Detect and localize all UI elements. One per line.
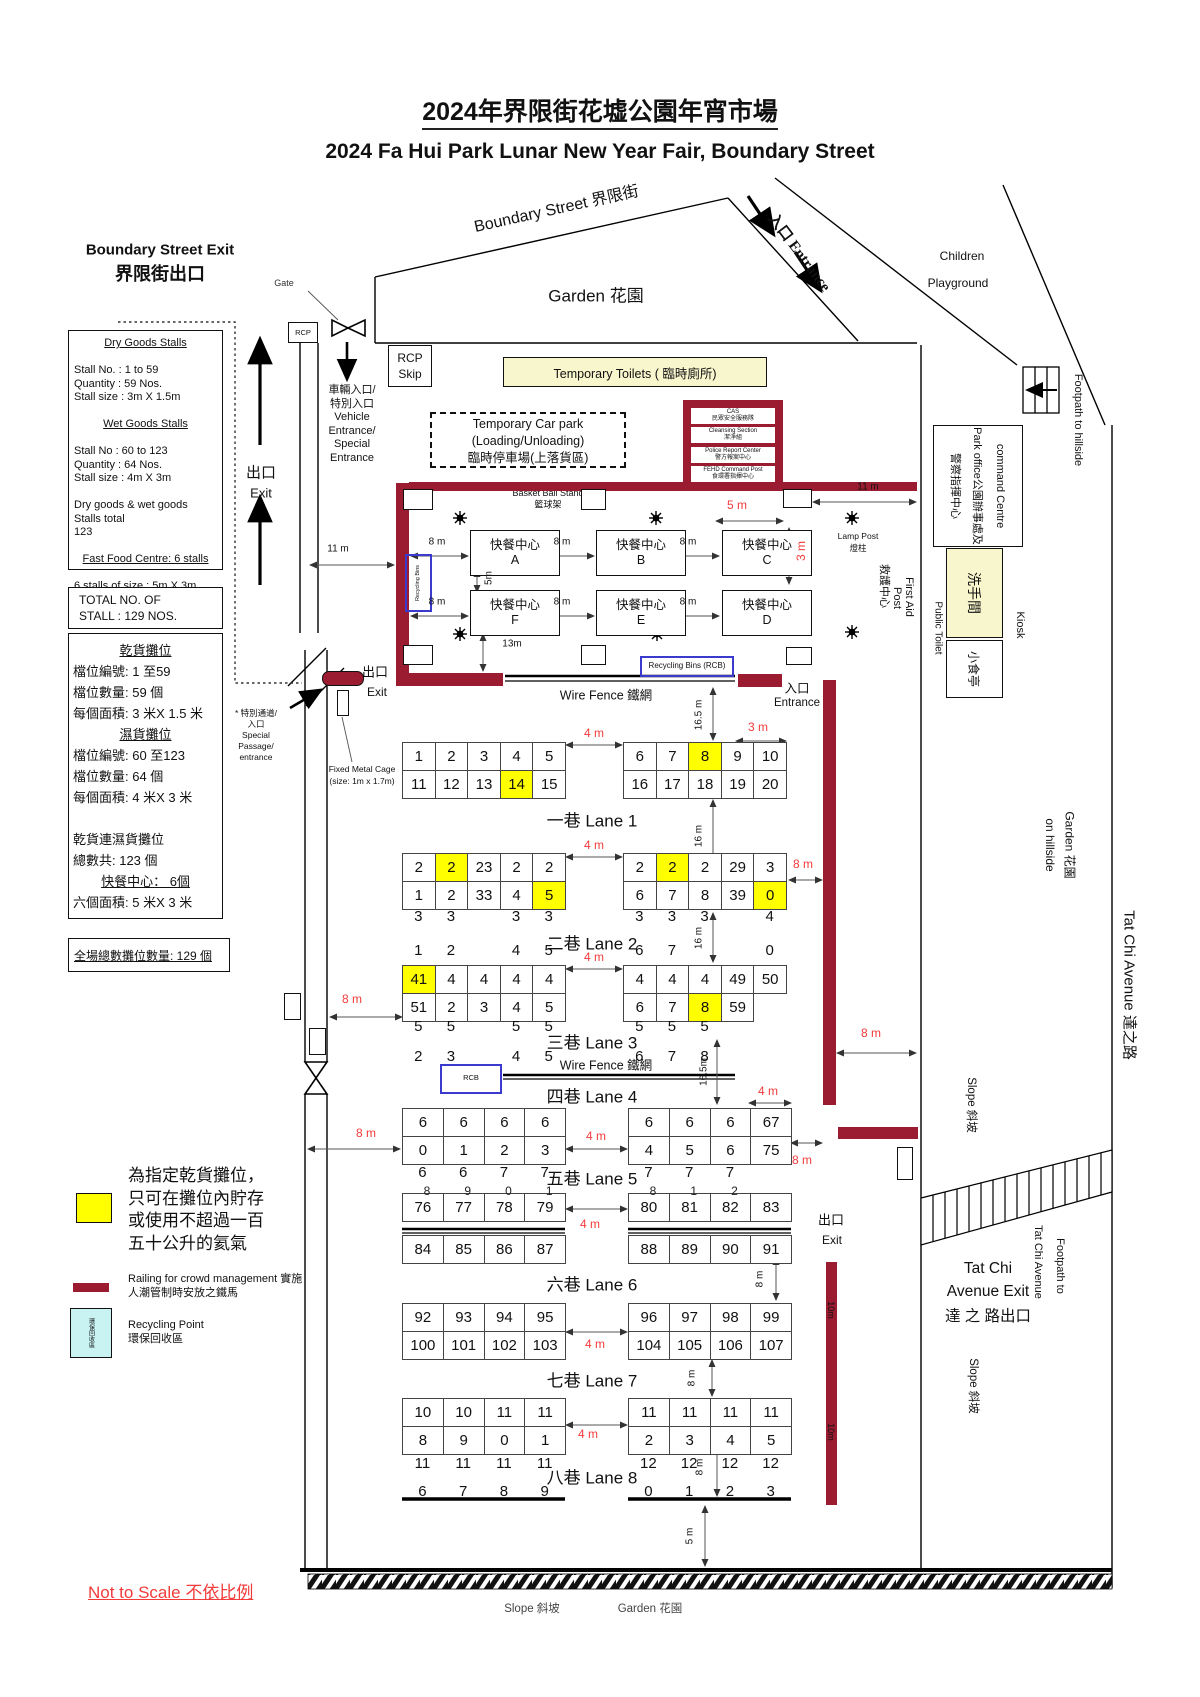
stall-number: 1	[459, 1142, 467, 1159]
stall-number: 105	[677, 1337, 702, 1354]
lane-label-8: 八巷 Lane 8	[547, 1464, 638, 1489]
stall-number: 2	[545, 859, 553, 876]
garden-hillside-2: on hillside	[1043, 818, 1057, 871]
special-passage-line: 入口	[226, 719, 286, 730]
stall-number: 0	[766, 887, 774, 904]
stall-number: 7	[668, 999, 676, 1016]
stall-number: 7	[668, 748, 676, 765]
children-playground-1: Children	[940, 249, 985, 263]
gate-post	[403, 489, 433, 510]
gate-post	[786, 647, 812, 665]
grand-total-text: 全場總數攤位數量: 129 個	[74, 947, 212, 964]
stall-number: 10	[455, 1404, 472, 1421]
info-line-zh	[73, 808, 218, 829]
command-post-row: Police Report Center警方報案中心	[691, 447, 775, 463]
railing-pill	[322, 671, 364, 686]
fair-map: 2024年界限街花墟公園年宵市場 2024 Fa Hui Park Lunar …	[0, 0, 1200, 1697]
stray-digit: 5	[668, 1018, 676, 1035]
stall-number: 6	[419, 1114, 427, 1131]
stall-cell: 2	[532, 853, 566, 882]
command-centre-line-1: command Centre	[994, 444, 1006, 528]
stall-cell: 107	[750, 1331, 792, 1360]
tat-chi-exit-2: Avenue Exit	[947, 1283, 1029, 1301]
stall-cell: 88	[628, 1235, 670, 1264]
stall-number: 11	[723, 1404, 739, 1421]
measure-label: 8 m	[356, 1126, 376, 1140]
legend-recycling-text: Recycling Point環保回收區	[128, 1318, 204, 1346]
stall-cell: 11	[484, 1398, 526, 1427]
stall-cell: 4	[467, 965, 501, 994]
stall-number: 9	[459, 1432, 467, 1449]
stall-number: 5	[545, 999, 553, 1016]
stall-number: 84	[415, 1241, 432, 1258]
info-line	[74, 351, 217, 365]
legend-gas-line: 或使用不超過一百	[128, 1210, 264, 1233]
measure-label: 4 m	[584, 726, 604, 740]
stall-cell: 2	[435, 881, 469, 910]
footpath-hillside-label: Footpath to hillside	[1072, 374, 1084, 466]
stall-number: 103	[533, 1337, 558, 1354]
command-centre-line-3: 警察指揮中心	[948, 453, 964, 519]
food-court-name: 快餐中心	[742, 598, 792, 613]
info-line: Quantity : 64 Nos.	[74, 459, 217, 473]
stall-number: 81	[681, 1199, 698, 1216]
stall-number: 3	[541, 1142, 549, 1159]
vehicle-entrance-line: 車輛入口/	[312, 384, 392, 398]
stall-number: 4	[701, 971, 709, 988]
measure-label: 8 m	[554, 537, 571, 548]
stall-number: 77	[455, 1199, 472, 1216]
stall-cell: 59	[721, 993, 755, 1022]
stall-number: 101	[451, 1337, 476, 1354]
info-line-zh: 檔位數量: 59 個	[73, 682, 218, 703]
stall-cell: 23	[467, 853, 501, 882]
stall-cell: 1	[402, 742, 436, 771]
stall-cell: 0	[484, 1426, 526, 1455]
stall-number: 4	[512, 748, 520, 765]
stall-cell: 11	[628, 1398, 670, 1427]
stall-number: 10	[415, 1404, 432, 1421]
stall-number: 2	[500, 1142, 508, 1159]
stall-cell: 12	[435, 770, 469, 799]
stray-digit: 7	[500, 1164, 508, 1181]
exit-corridor-zh: 出口	[246, 462, 276, 483]
stall-number-overlay: 8	[650, 1184, 657, 1198]
stall-number: 2	[447, 748, 455, 765]
stall-cell: 6	[710, 1108, 752, 1137]
stall-number: 82	[722, 1199, 739, 1216]
stall-cell: 67	[750, 1108, 792, 1137]
stall-number: 4	[636, 971, 644, 988]
stall-cell: 90	[710, 1235, 752, 1264]
lamp-post-label-zh: 燈柱	[849, 542, 866, 554]
kiosk-box-text: 小食亭	[966, 651, 983, 687]
measure-label: 8 m	[680, 597, 697, 608]
command-post-row: Cleansing Section潔淨組	[691, 427, 775, 443]
stall-cell: 3	[467, 993, 501, 1022]
measure-label: 11 m	[857, 482, 879, 493]
command-post-row: CAS民眾安全服務隊	[691, 408, 775, 424]
stall-cell: 39	[721, 881, 755, 910]
stall-cell: 87	[524, 1235, 566, 1264]
stall-cell: 4	[623, 965, 657, 994]
stray-digit: 0	[644, 1483, 652, 1500]
legend-railing-text: Railing for crowd management 實施人潮管制時安放之鐵…	[128, 1272, 302, 1300]
stall-number: 5	[545, 887, 553, 904]
legend-railing-line: 人潮管制時安放之鐵馬	[128, 1286, 302, 1300]
footpath-ttc-2: Tat Chi Avenue	[1032, 1225, 1044, 1299]
measure-label: 4 m	[758, 1084, 778, 1098]
gate-post	[403, 645, 433, 665]
stall-number: 4	[668, 971, 676, 988]
stall-cell: 6	[669, 1108, 711, 1137]
legend-railing-swatch	[73, 1283, 109, 1292]
stall-number: 5	[545, 748, 553, 765]
stray-digit: 6	[459, 1164, 467, 1181]
stall-number: 6	[645, 1114, 653, 1131]
railing-bar	[738, 674, 782, 687]
measure-label: 8 m	[554, 597, 571, 608]
stall-number: 94	[496, 1309, 513, 1326]
stall-number: 102	[492, 1337, 517, 1354]
stall-cell: 102	[484, 1331, 526, 1360]
stray-digit: 12	[762, 1455, 779, 1472]
food-court-name: 快餐中心	[490, 538, 540, 553]
measure-label: 8 m	[793, 857, 813, 871]
stall-cell: 92	[402, 1303, 444, 1332]
rcp-box: RCP	[288, 322, 318, 343]
stairs-icon-top	[1023, 367, 1059, 413]
stall-number: 3	[480, 999, 488, 1016]
stall-number: 90	[722, 1241, 739, 1258]
temporary-carpark-box: Temporary Car park(Loading/Unloading)臨時停…	[430, 412, 626, 468]
stray-digit: 6	[635, 1048, 643, 1065]
stall-number: 39	[729, 887, 746, 904]
gate-post	[897, 1147, 913, 1180]
measure-label: 8 m	[429, 597, 446, 608]
stall-number: 86	[496, 1241, 513, 1258]
stall-number: 100	[410, 1337, 435, 1354]
stall-number: 4	[480, 971, 488, 988]
measure-label: 8 m	[687, 1370, 698, 1387]
slope-label-1: Slope 斜坡	[964, 1077, 980, 1133]
stall-cell: 97	[669, 1303, 711, 1332]
food-court-letter: A	[511, 553, 519, 568]
stall-number: 2	[668, 859, 676, 876]
stall-cell: 10	[753, 742, 787, 771]
footpath-ttc-1: Footpath to	[1054, 1238, 1066, 1294]
stall-cell: 75	[750, 1136, 792, 1165]
stall-info-box: Dry Goods StallsStall No. : 1 to 59Quant…	[68, 330, 223, 570]
stray-digit: 7	[459, 1483, 467, 1500]
stall-number-overlay: 1	[546, 1184, 553, 1198]
boundary-street-exit-zh: 界限街出口	[115, 260, 205, 286]
stray-digit: 3	[512, 908, 520, 925]
gate-post	[783, 489, 812, 508]
stall-cell: 101	[443, 1331, 485, 1360]
measure-label: 4 m	[584, 838, 604, 852]
stall-number: 2	[447, 887, 455, 904]
stall-number: 0	[419, 1142, 427, 1159]
boundary-street-label: Boundary Street 界限街	[471, 177, 640, 237]
command-post-row-line: 民眾安全服務隊	[691, 416, 775, 423]
command-post-row-line: FEHD Command Post	[691, 467, 775, 474]
measure-label: 8 m	[342, 992, 362, 1006]
stall-cell: 1	[402, 881, 436, 910]
kiosk-label: Kiosk	[1014, 612, 1026, 639]
stall-cell: 93	[443, 1303, 485, 1332]
measure-label: 5 m	[727, 498, 747, 512]
food-court-unit-F: 快餐中心F	[470, 590, 560, 636]
title-zh: 2024年界限街花墟公園年宵市場	[422, 98, 778, 130]
stall-cell: 1	[443, 1136, 485, 1165]
stray-digit: 1	[414, 942, 422, 959]
boundary-street-exit-en: Boundary Street Exit	[86, 242, 234, 259]
stall-cell: 20	[753, 770, 787, 799]
entrance-mid-zh: 入口	[784, 678, 809, 697]
stall-number: 6	[726, 1142, 734, 1159]
total-line: STALL : 129 NOS.	[79, 608, 212, 624]
legend-gas-line: 五十公升的氦氣	[128, 1233, 264, 1256]
stall-number: 2	[645, 1432, 653, 1449]
stall-number: 0	[500, 1432, 508, 1449]
stall-cell: 99	[750, 1303, 792, 1332]
legend-gas-line: 只可在攤位內貯存	[128, 1188, 264, 1211]
special-passage-line: Special	[226, 730, 286, 741]
stall-number: 6	[636, 748, 644, 765]
railing-10m-2: 10m	[826, 1423, 836, 1441]
info-line-zh: 檔位編號: 60 至123	[73, 745, 218, 766]
stall-cell: 103	[524, 1331, 566, 1360]
measure-label: 4 m	[585, 1337, 605, 1351]
stall-cell: 8	[402, 1426, 444, 1455]
command-centre-line-2: Park office公園辦事處及	[970, 427, 986, 545]
stall-number: 97	[681, 1309, 698, 1326]
command-post-row-line: 潔淨組	[691, 435, 775, 442]
stall-number: 5	[767, 1432, 775, 1449]
food-court-letter: F	[511, 613, 519, 628]
stall-cell: 5	[669, 1136, 711, 1165]
stall-cell: 2	[623, 853, 657, 882]
stall-number: 6	[685, 1114, 693, 1131]
first-aid-en: First Aid	[903, 577, 915, 617]
stray-digit: 12	[640, 1455, 657, 1472]
stall-cell: 96	[628, 1303, 670, 1332]
lane-label-4: 四巷 Lane 4	[547, 1083, 638, 1108]
stall-cell: 768	[402, 1193, 444, 1222]
stray-digit: 6	[418, 1164, 426, 1181]
info-line-zh: 乾貨攤位	[73, 640, 218, 661]
tat-chi-exit-1: Tat Chi	[964, 1260, 1012, 1278]
measure-label: 8 m	[792, 1153, 812, 1167]
railing-10m-1: 10m	[826, 1301, 836, 1319]
info-line	[74, 567, 217, 581]
stall-number: 75	[763, 1142, 780, 1159]
info-line: Fast Food Centre: 6 stalls	[74, 553, 217, 567]
stall-number: 10	[762, 748, 779, 765]
stall-number: 106	[718, 1337, 743, 1354]
info-line-zh: 快餐中心： 6個	[73, 871, 218, 892]
bottom-slope-label: Slope 斜坡	[504, 1600, 560, 1616]
stall-number: 15	[541, 776, 558, 793]
legend-gas-text: 為指定乾貨攤位，只可在攤位內貯存或使用不超過一百五十公升的氦氣	[128, 1165, 264, 1255]
stall-cell: 11	[524, 1398, 566, 1427]
stray-digit: 3	[447, 1048, 455, 1065]
stall-number: 4	[645, 1142, 653, 1159]
stray-digit: 3	[414, 908, 422, 925]
stall-cell: 779	[443, 1193, 485, 1222]
food-court-name: 快餐中心	[616, 538, 666, 553]
special-passage-line: entrance	[226, 752, 286, 763]
stall-cell: 19	[721, 770, 755, 799]
stall-number: 14	[508, 776, 525, 793]
stall-cell: 14	[500, 770, 534, 799]
rcb-short-text: RCB	[463, 1073, 479, 1082]
stall-cell: 11	[669, 1398, 711, 1427]
stall-cell: 106	[710, 1331, 752, 1360]
stall-number: 6	[636, 999, 644, 1016]
stall-cell: 11	[402, 770, 436, 799]
carpark-line: 臨時停車場(上落貨區)	[432, 450, 624, 467]
stray-digit: 8	[500, 1483, 508, 1500]
stall-cell: 3	[524, 1136, 566, 1165]
stall-number: 87	[537, 1241, 554, 1258]
stall-number: 20	[762, 776, 779, 793]
exit-corridor-en: Exit	[250, 486, 272, 501]
stall-number: 78	[496, 1199, 513, 1216]
stall-cell: 94	[484, 1303, 526, 1332]
command-post-row-line: Police Report Center	[691, 448, 775, 455]
garden-label: Garden 花園	[548, 282, 643, 307]
railing-bar	[396, 673, 503, 686]
food-court-name: 快餐中心	[742, 538, 792, 553]
washroom-text: 洗手間	[964, 572, 984, 614]
info-line-zh: 檔位數量: 64 個	[73, 766, 218, 787]
temporary-toilets-text: Temporary Toilets ( 臨時廁所)	[554, 363, 717, 382]
info-line: Stall No : 60 to 123	[74, 445, 217, 459]
stall-number: 2	[415, 859, 423, 876]
stall-cell: 2	[435, 853, 469, 882]
exit-right-zh: 出口	[818, 1210, 844, 1229]
info-line	[74, 486, 217, 500]
stall-cell: 33	[467, 881, 501, 910]
stall-cell: 4	[500, 881, 534, 910]
stall-number: 93	[455, 1309, 472, 1326]
stall-number: 1	[415, 748, 423, 765]
stall-cell: 4	[710, 1426, 752, 1455]
stray-digit: 3	[635, 908, 643, 925]
stray-digit: 5	[545, 1048, 553, 1065]
measure-label: 11 m	[327, 544, 349, 555]
stall-number: 91	[763, 1241, 780, 1258]
stall-number: 104	[636, 1337, 661, 1354]
stall-cell: 4	[500, 965, 534, 994]
stall-cell: 2	[435, 742, 469, 771]
stall-number: 4	[512, 999, 520, 1016]
stall-cell: 2	[628, 1426, 670, 1455]
stall-cell: 8	[688, 742, 722, 771]
stray-digit: 11	[496, 1455, 512, 1472]
stall-number: 19	[729, 776, 746, 793]
stall-cell: 4	[628, 1136, 670, 1165]
measure-label: 16 m	[694, 927, 705, 949]
stall-cell: 4	[500, 742, 534, 771]
stall-number: 2	[512, 859, 520, 876]
entrance-mid-en: Entrance	[774, 697, 820, 709]
stall-cell: 6	[484, 1108, 526, 1137]
railing-wall-top	[409, 482, 917, 491]
stall-cell: 104	[628, 1331, 670, 1360]
vehicle-entrance-label: 車輛入口/特別入口VehicleEntrance/SpecialEntrance	[312, 384, 392, 465]
stall-cell: 6	[524, 1108, 566, 1137]
stall-cell: 10	[443, 1398, 485, 1427]
measure-label: 16 m	[694, 825, 705, 847]
stall-number: 4	[512, 887, 520, 904]
stall-cell: 84	[402, 1235, 444, 1264]
stall-number: 6	[726, 1114, 734, 1131]
stall-info-box-zh: 乾貨攤位檔位編號: 1 至59檔位數量: 59 個每個面積: 3 米X 1.5 …	[68, 633, 223, 919]
legend-recycling-swatch-text: 環保回收區	[87, 1318, 96, 1348]
stall-number: 107	[759, 1337, 784, 1354]
measure-label: 4 m	[578, 1427, 598, 1441]
legend-railing-line: Railing for crowd management 實施	[128, 1272, 302, 1286]
stall-cell: 780	[484, 1193, 526, 1222]
wire-fence-label-1: Wire Fence 鐵網	[560, 685, 652, 704]
measure-label: 4 m	[580, 1217, 600, 1231]
first-aid-zh: 救護中心	[877, 564, 893, 608]
rcb-long-text: Recycling Bins (RCB)	[649, 661, 726, 670]
stall-cell: 4	[688, 965, 722, 994]
stall-cell: 2	[402, 853, 436, 882]
stall-number: 4	[512, 971, 520, 988]
measure-label: 16.5m	[699, 1058, 710, 1086]
food-court-unit-A: 快餐中心A	[470, 530, 560, 576]
stray-digit: 12	[722, 1455, 739, 1472]
stall-cell: 11	[710, 1398, 752, 1427]
slope-label-2: Slope 斜坡	[966, 1358, 982, 1414]
food-court-letter: E	[637, 613, 645, 628]
stall-number: 9	[733, 748, 741, 765]
stall-number: 11	[411, 776, 427, 793]
special-passage-label: * 特別通道/入口SpecialPassage/entrance	[226, 708, 286, 763]
entrance-corridor-label: 入口 Entrance	[764, 209, 837, 296]
garden-hillside-1: Garden 花園	[1062, 811, 1079, 878]
vehicle-entrance-line: Entrance/	[312, 425, 392, 439]
stray-digit: 2	[447, 942, 455, 959]
lane-label-7: 七巷 Lane 7	[547, 1367, 638, 1392]
stall-cell: 8	[688, 881, 722, 910]
legend-recycling-line: 環保回收區	[128, 1332, 204, 1346]
stall-number: 50	[762, 971, 779, 988]
stray-digit: 4	[766, 908, 774, 925]
stray-digit: 3	[668, 908, 676, 925]
measure-label: 4 m	[584, 950, 604, 964]
stall-number: 83	[763, 1199, 780, 1216]
stall-number: 23	[476, 859, 493, 876]
stall-cell: 5	[750, 1426, 792, 1455]
stall-number: 88	[641, 1241, 658, 1258]
stall-number: 6	[636, 887, 644, 904]
stray-digit: 5	[447, 1018, 455, 1035]
stall-cell: 49	[721, 965, 755, 994]
stall-number: 6	[459, 1114, 467, 1131]
rcb-long-box: Recycling Bins (RCB)	[640, 656, 734, 677]
stall-cell: 808	[628, 1193, 670, 1222]
stall-cell: 16	[623, 770, 657, 799]
stall-cell: 3	[669, 1426, 711, 1455]
food-court-name: 快餐中心	[490, 598, 540, 613]
fixed-cage-label-1: Fixed Metal Cage	[329, 764, 396, 774]
